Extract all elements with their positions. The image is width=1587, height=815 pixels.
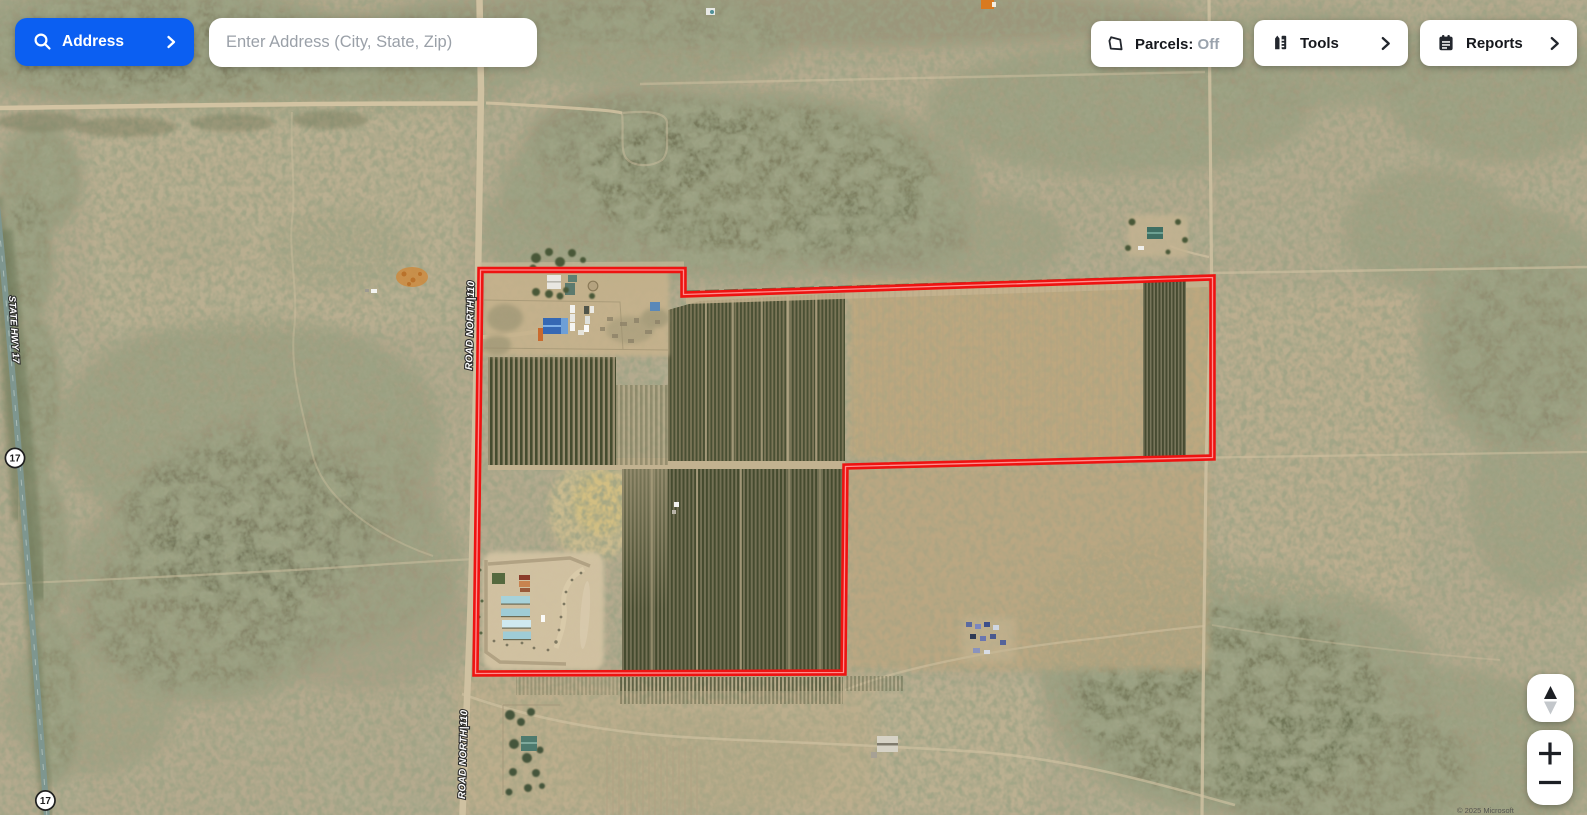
svg-text:17: 17 (40, 796, 52, 807)
svg-text:17: 17 (9, 454, 21, 465)
svg-text:© 2025 Microsoft: © 2025 Microsoft (1457, 806, 1515, 815)
svg-text:ROAD NORTH|110: ROAD NORTH|110 (457, 709, 470, 799)
svg-text:ROAD NORTH|110: ROAD NORTH|110 (464, 280, 477, 370)
